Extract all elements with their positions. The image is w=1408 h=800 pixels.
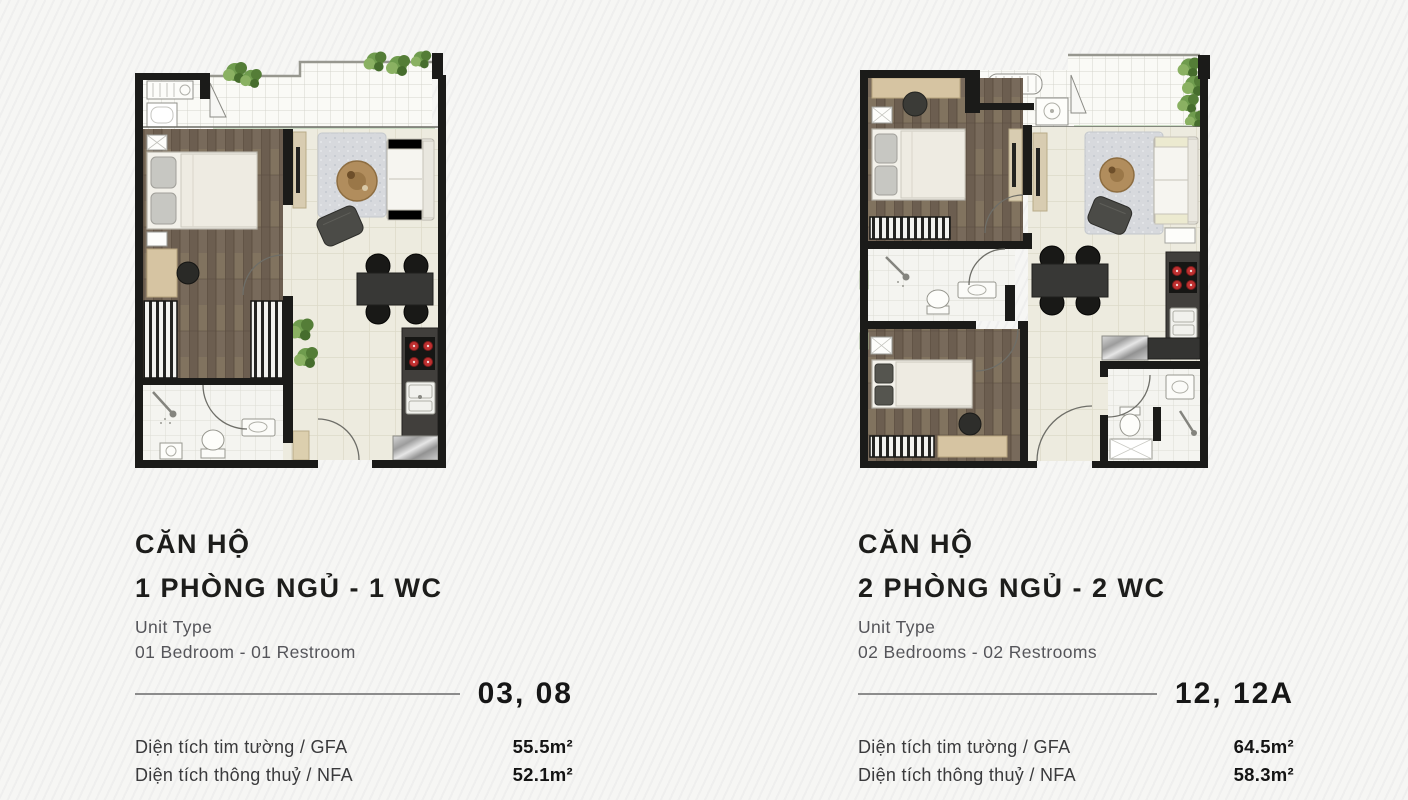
sink-icon: [1170, 308, 1197, 338]
unit-type-value: 01 Bedroom - 01 Restroom: [135, 640, 356, 665]
floor-plan-1br-image: [135, 45, 453, 468]
wardrobe-icon: [870, 217, 950, 239]
unit-type: Unit Type 01 Bedroom - 01 Restroom: [135, 615, 356, 665]
area-value: 58.3m²: [1234, 761, 1294, 788]
wardrobe-icon: [144, 301, 177, 378]
wardrobe-icon: [870, 436, 934, 457]
wardrobe-icon: [251, 301, 283, 378]
area-label: Diện tích thông thuỷ / NFA: [858, 762, 1076, 789]
area-row-gfa: Diện tích tim tường / GFA 64.5m²: [858, 733, 1294, 761]
side-table-icon: [1165, 228, 1195, 243]
chair-icon: [959, 413, 981, 435]
unit-title-line2: 1 PHÒNG NGỦ - 1 WC: [135, 566, 443, 610]
bedroom-1: [868, 78, 1023, 241]
unit-type-label: Unit Type: [858, 615, 1097, 640]
unit-title: CĂN HỘ 1 PHÒNG NGỦ - 1 WC: [135, 522, 443, 610]
tv-icon: [1012, 143, 1016, 187]
bath-sink-icon: [1166, 375, 1194, 399]
nightstand-icon: [147, 232, 167, 246]
water-heater-icon: [147, 103, 177, 127]
unit-title-line2: 2 PHÒNG NGỦ - 2 WC: [858, 566, 1166, 610]
bedroom: [143, 129, 283, 378]
divider-line: [135, 693, 460, 695]
unit-type-value: 02 Bedrooms - 02 Restrooms: [858, 640, 1097, 665]
bed-icon: [147, 152, 257, 229]
unit-number-row: 03, 08: [135, 679, 573, 709]
area-value: 52.1m²: [513, 761, 573, 788]
unit-number-row: 12, 12A: [858, 679, 1294, 709]
bed-icon: [872, 360, 972, 408]
washing-machine-icon: [1036, 98, 1068, 125]
divider-line: [858, 693, 1157, 695]
area-label: Diện tích tim tường / GFA: [858, 734, 1070, 761]
chair-icon: [177, 262, 199, 284]
living-room: [283, 129, 438, 460]
chair-icon: [903, 92, 927, 116]
steel-counter: [393, 436, 438, 460]
unit-title: CĂN HỘ 2 PHÒNG NGỦ - 2 WC: [858, 522, 1166, 610]
unit-type: Unit Type 02 Bedrooms - 02 Restrooms: [858, 615, 1097, 665]
plant-icon: [386, 55, 410, 76]
area-value: 55.5m²: [513, 733, 573, 760]
tv-icon: [296, 147, 300, 193]
bath-sink-icon: [242, 419, 275, 436]
bedroom-2: [860, 329, 1020, 461]
area-row-nfa: Diện tích thông thuỷ / NFA 58.3m²: [858, 761, 1294, 789]
bed-icon: [872, 129, 965, 200]
floor-plan-2br-image: [858, 45, 1212, 468]
unit-title-line1: CĂN HỘ: [858, 522, 1166, 566]
area-row-nfa: Diện tích thông thuỷ / NFA 52.1m²: [135, 761, 573, 789]
tv-icon: [1036, 148, 1040, 196]
sofa-icon: [387, 139, 434, 220]
balcony: [143, 51, 438, 132]
bathroom-1: [860, 249, 1015, 321]
area-table: Diện tích tim tường / GFA 55.5m² Diện tí…: [135, 733, 573, 789]
ac-unit-icon: [147, 81, 193, 99]
unit-numbers: 03, 08: [478, 677, 573, 711]
stove-icon: [1169, 262, 1197, 293]
desk-icon: [938, 436, 1007, 457]
stove-icon: [405, 337, 435, 370]
coffee-table-icon: [1100, 158, 1134, 192]
desk-icon: [147, 249, 177, 297]
area-label: Diện tích tim tường / GFA: [135, 734, 347, 761]
area-label: Diện tích thông thuỷ / NFA: [135, 762, 353, 789]
bath-sink-icon: [958, 282, 996, 298]
area-table: Diện tích tim tường / GFA 64.5m² Diện tí…: [858, 733, 1294, 789]
area-value: 64.5m²: [1234, 733, 1294, 760]
unit-numbers: 12, 12A: [1175, 677, 1294, 711]
shower-tray-icon: [1110, 439, 1152, 459]
plant-icon: [411, 51, 431, 69]
sofa-icon: [1154, 137, 1198, 224]
toilet-icon: [201, 430, 225, 458]
area-row-gfa: Diện tích tim tường / GFA 55.5m²: [135, 733, 573, 761]
plant-icon: [364, 52, 387, 72]
sink-icon: [406, 382, 435, 414]
unit-title-line1: CĂN HỘ: [135, 522, 443, 566]
coffee-table-icon: [337, 161, 377, 201]
washing-machine-icon: [160, 443, 182, 459]
unit-type-label: Unit Type: [135, 615, 356, 640]
entry-cabinet: [293, 431, 309, 460]
toilet-icon: [927, 290, 949, 314]
steel-counter: [1102, 336, 1148, 360]
